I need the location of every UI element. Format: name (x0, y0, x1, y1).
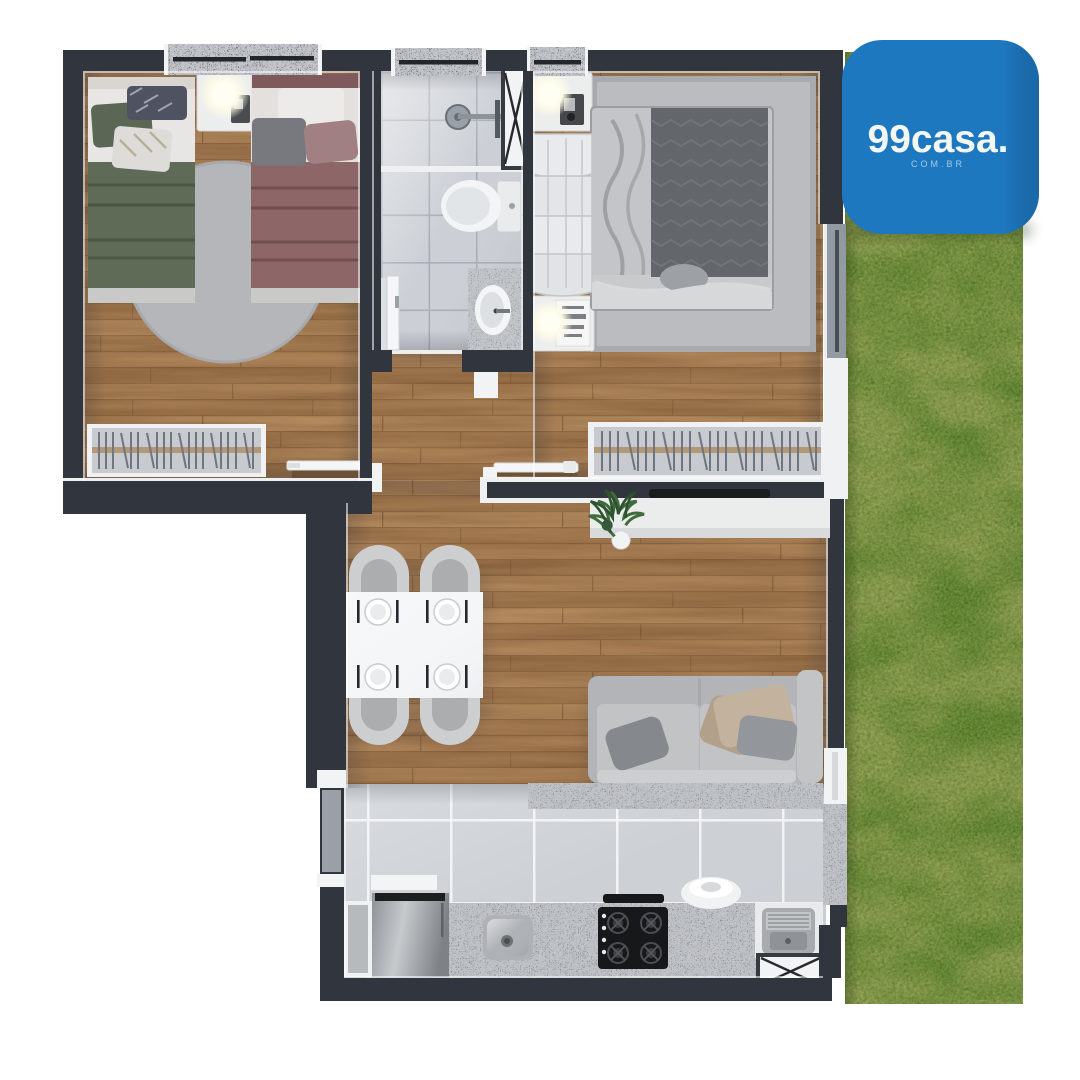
svg-text:COM.BR: COM.BR (911, 159, 965, 169)
svg-text:99casa.: 99casa. (868, 118, 1009, 161)
